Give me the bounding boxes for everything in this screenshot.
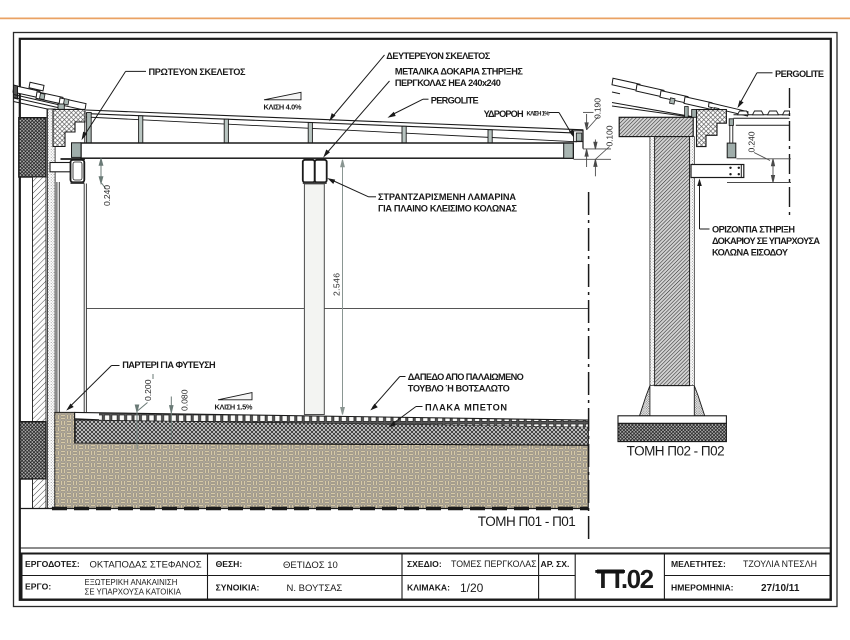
- svg-text:ΠΛΑΚΑ ΜΠΕΤΟΝ: ΠΛΑΚΑ ΜΠΕΤΟΝ: [425, 402, 507, 412]
- svg-text:ΟΚΤΑΠΟΔΑΣ ΣΤΕΦΑΝΟΣ: ΟΚΤΑΠΟΔΑΣ ΣΤΕΦΑΝΟΣ: [90, 560, 202, 571]
- svg-text:ΕΡΓΟΔΟΤΕΣ:: ΕΡΓΟΔΟΤΕΣ:: [25, 559, 80, 569]
- svg-text:0.240: 0.240: [747, 131, 757, 152]
- svg-text:ΥΔΡΟΡΟΗ: ΥΔΡΟΡΟΗ: [484, 109, 524, 119]
- svg-text:ΤΟΜΗ Π01 - Π01: ΤΟΜΗ Π01 - Π01: [478, 514, 576, 529]
- svg-text:ΔΕΥΤΕΡΕΥΟΝ ΣΚΕΛΕΤΟΣ: ΔΕΥΤΕΡΕΥΟΝ ΣΚΕΛΕΤΟΣ: [386, 51, 490, 61]
- svg-text:ΤΟΥΒΛΟ Ή ΒΟΤΣΑΛΩΤΟ: ΤΟΥΒΛΟ Ή ΒΟΤΣΑΛΩΤΟ: [408, 384, 510, 394]
- svg-text:ΤΤ.02: ΤΤ.02: [595, 564, 654, 594]
- svg-text:27/10/11: 27/10/11: [761, 583, 800, 594]
- svg-text:0.080: 0.080: [180, 389, 190, 411]
- svg-text:ΚΛΙΣΗ 1.5%: ΚΛΙΣΗ 1.5%: [215, 402, 253, 411]
- svg-text:ΘΕΣΗ:: ΘΕΣΗ:: [216, 559, 243, 569]
- svg-text:ΠΡΩΤΕΥΟΝ ΣΚΕΛΕΤΟΣ: ΠΡΩΤΕΥΟΝ ΣΚΕΛΕΤΟΣ: [149, 67, 246, 77]
- svg-text:ΚΛΙΜΑΚΑ:: ΚΛΙΜΑΚΑ:: [407, 583, 450, 593]
- svg-text:PERGOLITE: PERGOLITE: [431, 95, 479, 105]
- svg-text:ΤΖΟΥΛΙΑ ΝΤΕΣΛΗ: ΤΖΟΥΛΙΑ ΝΤΕΣΛΗ: [743, 559, 817, 569]
- svg-text:0.190: 0.190: [593, 98, 603, 119]
- svg-text:Ν. ΒΟΥΤΣΑΣ: Ν. ΒΟΥΤΣΑΣ: [287, 583, 343, 594]
- svg-text:2.546: 2.546: [332, 273, 342, 296]
- svg-text:ΚΛΙΣΗ 1%: ΚΛΙΣΗ 1%: [527, 111, 551, 117]
- svg-text:ΣΤΡΑΝΤΖΑΡΙΣΜΕΝΗ ΛΑΜΑΡΙΝΑ: ΣΤΡΑΝΤΖΑΡΙΣΜΕΝΗ ΛΑΜΑΡΙΝΑ: [378, 192, 516, 202]
- svg-text:ΗΜΕΡΟΜΗΝΙΑ:: ΗΜΕΡΟΜΗΝΙΑ:: [671, 583, 734, 593]
- svg-text:PERGOLITE: PERGOLITE: [775, 69, 824, 79]
- svg-text:0.100: 0.100: [605, 125, 615, 146]
- svg-text:ΟΡΙΖΟΝΤΙΑ ΣΤΗΡΙΞΗ: ΟΡΙΖΟΝΤΙΑ ΣΤΗΡΙΞΗ: [712, 224, 795, 234]
- svg-text:ΕΡΓΟ:: ΕΡΓΟ:: [25, 582, 51, 592]
- svg-text:ΚΟΛΩΝΑ ΕΙΣΟΔΟΥ: ΚΟΛΩΝΑ ΕΙΣΟΔΟΥ: [712, 247, 788, 257]
- svg-text:ΣΥΝΟΙΚΙΑ:: ΣΥΝΟΙΚΙΑ:: [216, 583, 260, 593]
- svg-text:1/20: 1/20: [460, 581, 484, 595]
- svg-text:ΓΙΑ ΠΛΑΙΝΟ ΚΛΕΙΣΙΜΟ ΚΟΛΩΝΑΣ: ΓΙΑ ΠΛΑΙΝΟ ΚΛΕΙΣΙΜΟ ΚΟΛΩΝΑΣ: [378, 204, 517, 214]
- svg-text:ΚΛΙΣΗ 4.0%: ΚΛΙΣΗ 4.0%: [264, 102, 302, 111]
- svg-text:ΕΞΩΤΕΡΙΚΗ ΑΝΑΚΑΙΝΙΣΗ: ΕΞΩΤΕΡΙΚΗ ΑΝΑΚΑΙΝΙΣΗ: [85, 578, 178, 587]
- svg-text:ΤΟΜΕΣ ΠΕΡΓΚΟΛΑΣ: ΤΟΜΕΣ ΠΕΡΓΚΟΛΑΣ: [451, 559, 537, 569]
- svg-text:ΜΕΤΑΛΙΚΑ ΔΟΚΑΡΙΑ ΣΤΗΡΙΞΗΣ: ΜΕΤΑΛΙΚΑ ΔΟΚΑΡΙΑ ΣΤΗΡΙΞΗΣ: [395, 67, 523, 77]
- svg-text:ΔΑΠΕΔΟ ΑΠΟ ΠΑΛΑΙΩΜΕΝΟ: ΔΑΠΕΔΟ ΑΠΟ ΠΑΛΑΙΩΜΕΝΟ: [408, 372, 524, 382]
- svg-text:ΣΕ ΥΠΑΡΧΟΥΣΑ ΚΑΤΟΙΚΙΑ: ΣΕ ΥΠΑΡΧΟΥΣΑ ΚΑΤΟΙΚΙΑ: [85, 587, 182, 596]
- svg-text:ΑΡ. ΣΧ.: ΑΡ. ΣΧ.: [541, 559, 570, 569]
- svg-text:0.200: 0.200: [143, 379, 153, 401]
- svg-text:ΔΟΚΑΡΙΟΥ ΣΕ ΥΠΑΡΧΟΥΣΑ: ΔΟΚΑΡΙΟΥ ΣΕ ΥΠΑΡΧΟΥΣΑ: [712, 236, 820, 246]
- svg-text:ΤΟΜΗ Π02 - Π02: ΤΟΜΗ Π02 - Π02: [627, 444, 725, 459]
- svg-text:ΣΧΕΔΙΟ:: ΣΧΕΔΙΟ:: [407, 559, 442, 569]
- svg-text:ΘΕΤΙΔΟΣ 10: ΘΕΤΙΔΟΣ 10: [283, 560, 338, 571]
- svg-text:0.240: 0.240: [102, 185, 112, 206]
- svg-text:ΠΑΡΤΕΡΙ ΓΙΑ ΦΥΤΕΥΣΗ: ΠΑΡΤΕΡΙ ΓΙΑ ΦΥΤΕΥΣΗ: [122, 360, 216, 370]
- svg-text:ΠΕΡΓΚΟΛΑΣ ΗΕΑ 240x240: ΠΕΡΓΚΟΛΑΣ ΗΕΑ 240x240: [395, 78, 501, 88]
- svg-text:ΜΕΛΕΤΗΤΕΣ:: ΜΕΛΕΤΗΤΕΣ:: [671, 559, 726, 569]
